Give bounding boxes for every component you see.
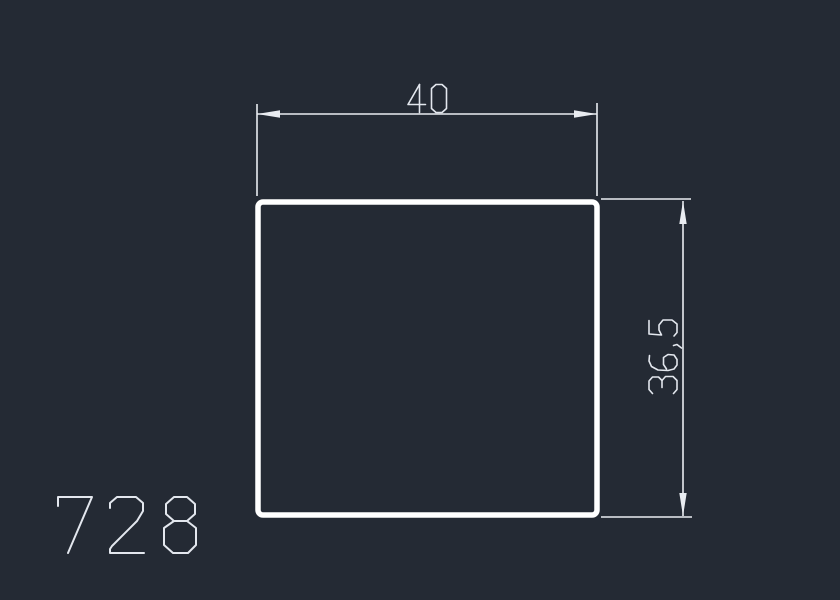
drawing-stage xyxy=(0,0,840,600)
drawing-canvas xyxy=(0,0,840,600)
